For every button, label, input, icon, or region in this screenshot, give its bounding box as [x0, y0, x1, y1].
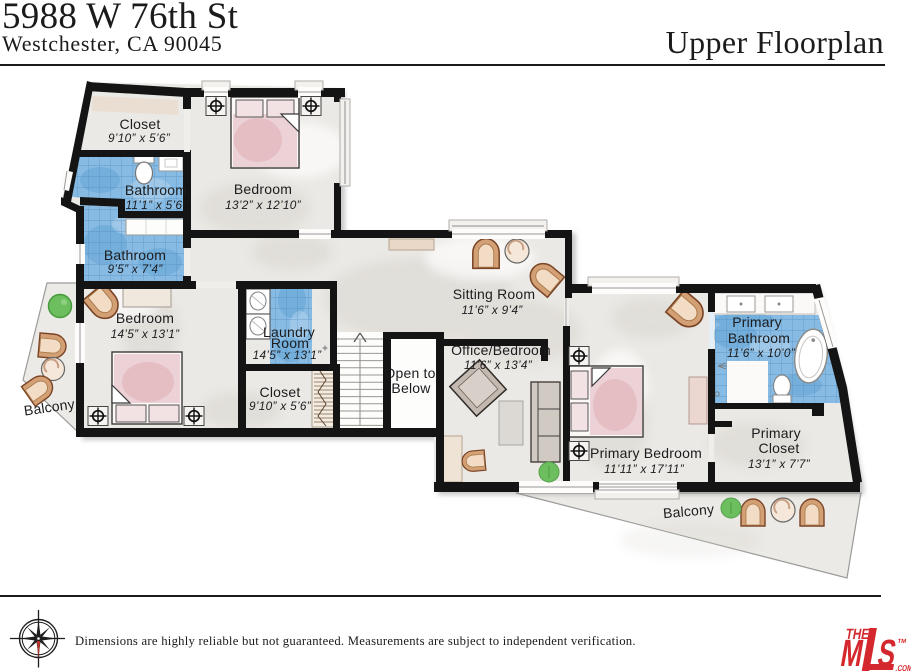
svg-text:Bedroom: Bedroom: [116, 310, 174, 326]
svg-text:Primary: Primary: [732, 314, 782, 330]
svg-text:Closet: Closet: [120, 116, 161, 132]
svg-text:Office/Bedroom: Office/Bedroom: [451, 342, 551, 358]
svg-text:9’10” x 5’6”: 9’10” x 5’6”: [249, 399, 312, 413]
svg-text:13’2” x 12’10”: 13’2” x 12’10”: [225, 198, 301, 212]
svg-text:9’10” x 5’6”: 9’10” x 5’6”: [108, 131, 171, 145]
svg-text:Closet: Closet: [260, 384, 301, 400]
svg-text:Primary Bedroom: Primary Bedroom: [590, 445, 702, 461]
svg-text:Bathroom: Bathroom: [104, 247, 166, 263]
svg-text:14’5” x 13’1”: 14’5” x 13’1”: [111, 327, 181, 341]
svg-text:14’5” x 13’1”: 14’5” x 13’1”: [253, 348, 323, 362]
svg-text:9’5” x 7’4”: 9’5” x 7’4”: [107, 262, 163, 276]
svg-text:Bedroom: Bedroom: [234, 181, 292, 197]
svg-text:Primary: Primary: [751, 425, 801, 441]
svg-text:Sitting Room: Sitting Room: [453, 286, 536, 302]
svg-text:Below: Below: [391, 380, 431, 396]
svg-text:11’6” x 13’4”: 11’6” x 13’4”: [464, 358, 533, 372]
svg-text:13’1” x 7’7”: 13’1” x 7’7”: [748, 457, 811, 471]
svg-text:Open to: Open to: [384, 365, 435, 381]
svg-text:11’11” x 17’11”: 11’11” x 17’11”: [604, 462, 685, 476]
svg-text:11’1” x 5’6”: 11’1” x 5’6”: [125, 198, 187, 212]
svg-text:Closet: Closet: [759, 440, 800, 456]
svg-text:Bathroom: Bathroom: [728, 330, 790, 346]
svg-text:11’6” x 10’0”: 11’6” x 10’0”: [727, 346, 796, 360]
svg-text:11’6” x 9’4”: 11’6” x 9’4”: [461, 303, 523, 317]
svg-text:Bathroom: Bathroom: [125, 182, 187, 198]
